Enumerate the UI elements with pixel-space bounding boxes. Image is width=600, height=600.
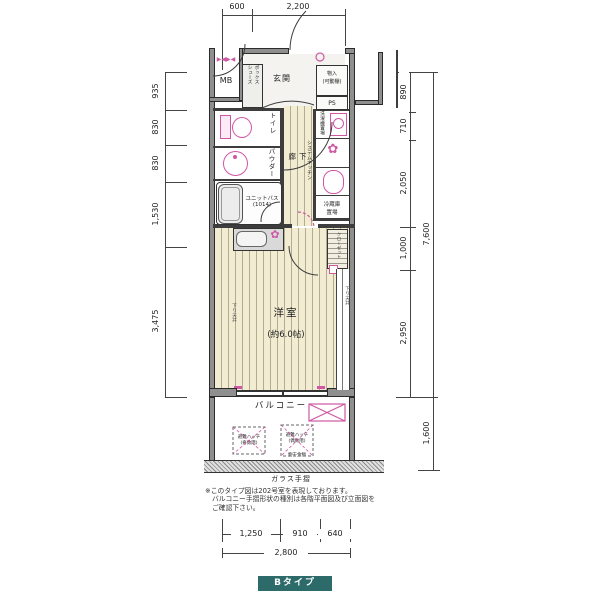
- partition: [313, 218, 349, 221]
- dim-left-830b: 830: [151, 143, 161, 183]
- dim-right-total-7600: 7,600: [422, 214, 432, 254]
- down-ceiling-left: 下り天井: [230, 303, 237, 329]
- dim-tick: [222, 519, 223, 542]
- dim-tick: [418, 470, 440, 471]
- window-mullion: [282, 390, 284, 397]
- fridge-label-line1: 冷蔵庫: [316, 200, 348, 208]
- ps-box: PS: [316, 96, 348, 110]
- dim-tick: [252, 9, 253, 32]
- partition: [316, 195, 349, 196]
- entrance-label: 玄関: [267, 73, 297, 84]
- counter-burner-icon: ✿: [266, 229, 284, 241]
- partition: [318, 224, 355, 228]
- unit-bath-label-line1: ユニットバス: [243, 194, 281, 202]
- kitchen-sink-unit: [323, 170, 344, 194]
- bathtub-inner: [221, 187, 240, 221]
- glass-rail-band: [204, 460, 384, 473]
- dim-tick: [400, 270, 416, 271]
- dim-tick: [165, 145, 187, 146]
- laundry-bracket-label: 物干金物: [280, 452, 314, 458]
- partition: [316, 167, 349, 168]
- burner-icon: ✿: [323, 143, 343, 157]
- storage-label-line2: (可動棚): [317, 78, 347, 85]
- dim-left-935: 935: [151, 71, 161, 111]
- toilet-tank: [220, 115, 231, 139]
- dim-tick: [280, 519, 281, 542]
- dim-left-1530: 1,530: [151, 194, 161, 234]
- dim-right-2950: 2,950: [399, 313, 409, 353]
- wall-neighbor-line: [396, 50, 398, 108]
- dim-bottom-910: 910: [283, 529, 317, 539]
- hatch-even-label2: (偶数階): [281, 438, 313, 444]
- dim-right-inner-line: [410, 72, 411, 397]
- dim-top-2200: 2,200: [273, 2, 323, 12]
- balcony-wall-right: [349, 397, 355, 461]
- toilet-label: トイレ: [267, 112, 277, 150]
- note-line3: ご確認下さい。: [205, 504, 405, 512]
- wall-neighbor-stub2: [378, 52, 383, 105]
- dim-right-710: 710: [399, 106, 409, 146]
- kitchen-label: システムキッチン: [306, 140, 313, 218]
- meter-valve-icons: ▶◀▶◀: [212, 56, 240, 63]
- partition: [213, 108, 284, 111]
- dim-tick: [345, 9, 346, 46]
- dim-left-line: [165, 72, 166, 397]
- dim-bottom-total-2800: 2,800: [264, 548, 308, 558]
- storage-box: 物入 (可動棚): [316, 65, 348, 96]
- type-badge: Bタイプ: [258, 576, 332, 591]
- shoe-box-label-col1: シューズ: [246, 65, 253, 107]
- dim-bottom-1250: 1,250: [231, 529, 271, 539]
- window-lock-right: [317, 386, 325, 389]
- closet: クローゼット: [327, 229, 348, 269]
- balcony-label: バルコニー: [247, 399, 315, 411]
- dim-left-3475: 3,475: [151, 301, 161, 341]
- wall-mb-bottom: [209, 97, 243, 102]
- shoe-box-label-col2: ボックス: [253, 65, 260, 107]
- wall-top-b: [345, 48, 355, 54]
- dim-top-600: 600: [217, 2, 257, 12]
- basin-faucet-dot: [233, 155, 237, 159]
- wall-bottom-left-corner: [209, 388, 237, 397]
- dim-tick: [165, 182, 187, 183]
- dim-balcony-1600: 1,600: [422, 413, 432, 453]
- dim-right-2050: 2,050: [399, 163, 409, 203]
- dim-tick: [165, 72, 187, 73]
- hatch-odd-label2: (奇数階): [233, 440, 265, 446]
- washing-machine-drum: [333, 118, 344, 129]
- dim-left-830a: 830: [151, 107, 161, 147]
- dim-bottom-640: 640: [318, 529, 352, 539]
- counter-sink: [236, 231, 267, 247]
- note-line2: バルコニー手摺形状の種別は各階平面図及び立面図を: [205, 495, 405, 503]
- western-room-label: 洋室: [266, 305, 306, 320]
- dim-right-outer-line: [433, 72, 434, 470]
- toilet-bowl: [232, 117, 252, 138]
- mb-label: MB: [214, 76, 238, 85]
- ps-label: PS: [317, 100, 347, 107]
- dim-top-line: [222, 15, 345, 16]
- dim-tick: [165, 247, 187, 248]
- wall-top-a: [241, 48, 289, 54]
- dim-tick: [165, 397, 187, 398]
- laundry-label: 洗濯機置場: [318, 111, 325, 139]
- dim-tick: [396, 397, 438, 398]
- plan-notes: ※このタイプ図は202号室を表現しております。 バルコニー手摺形状の種別は各階平…: [205, 487, 405, 512]
- dim-tick: [165, 110, 187, 111]
- powder-label: パウダー: [266, 148, 276, 182]
- dim-right-1000: 1,000: [399, 228, 409, 268]
- floorplan-canvas: 600 2,200 935 830 830 1,530 3,475 890 71…: [0, 0, 600, 600]
- shoe-box: シューズ ボックス: [242, 64, 263, 108]
- down-ceiling-right: 下り天井: [343, 286, 350, 312]
- glass-rail-label: ガラス手摺: [260, 474, 322, 484]
- storage-label-line1: 物入: [317, 70, 347, 77]
- unit-bath-label-line2: (1014): [243, 202, 281, 208]
- fridge-label-line2: 置場: [316, 208, 348, 216]
- dim-tick: [350, 548, 351, 558]
- balcony-wall-left: [209, 397, 215, 461]
- western-room-size: (約6.0帖): [252, 328, 320, 340]
